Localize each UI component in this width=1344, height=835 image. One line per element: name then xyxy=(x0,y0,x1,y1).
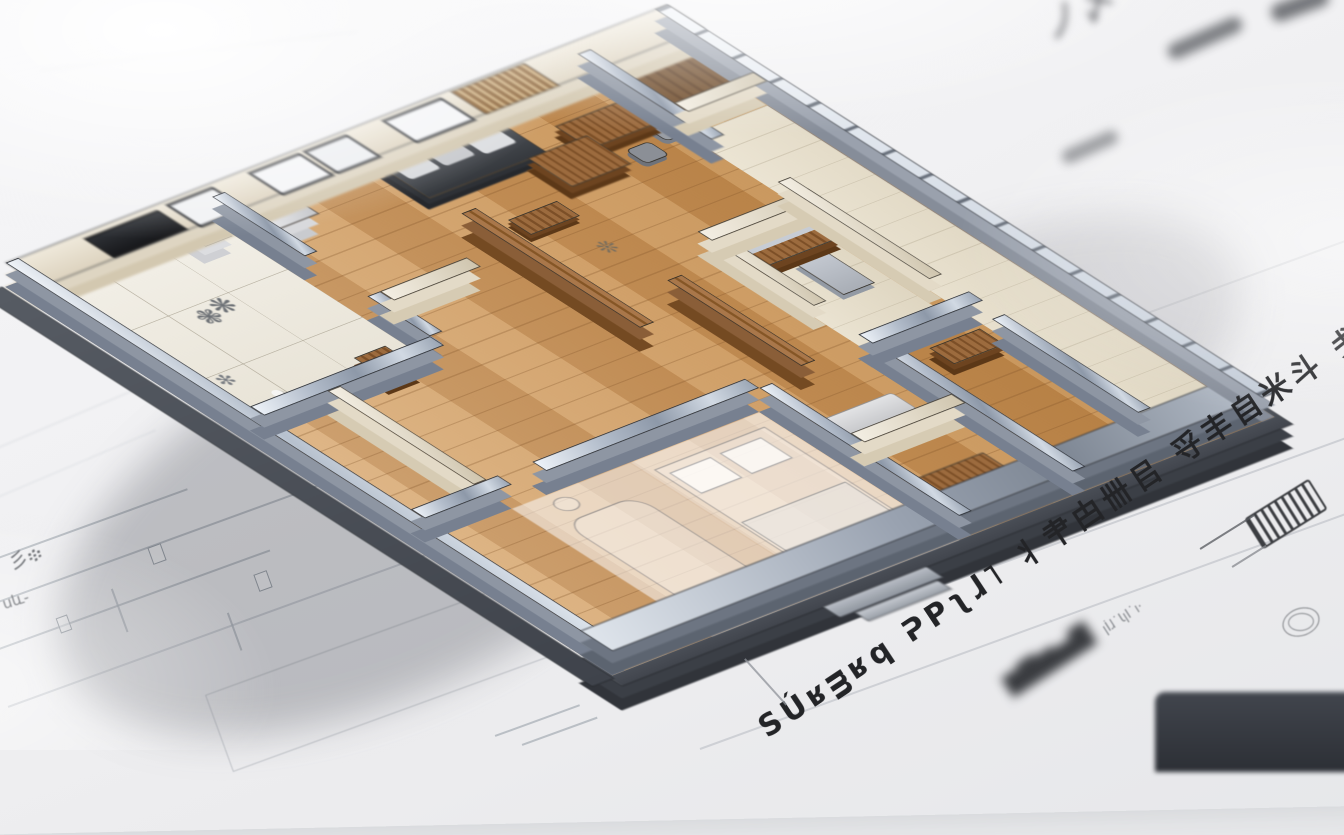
stamp-scribble-inner xyxy=(1287,612,1315,633)
dark-corner-object xyxy=(1155,692,1344,772)
sofa-pillow xyxy=(466,129,517,154)
sofa-pillow xyxy=(393,157,441,180)
desk-scene: 彡፨ սև֊ ❃❋ ✻ ❊ xyxy=(0,0,1344,750)
sofa-pillow xyxy=(428,143,476,166)
